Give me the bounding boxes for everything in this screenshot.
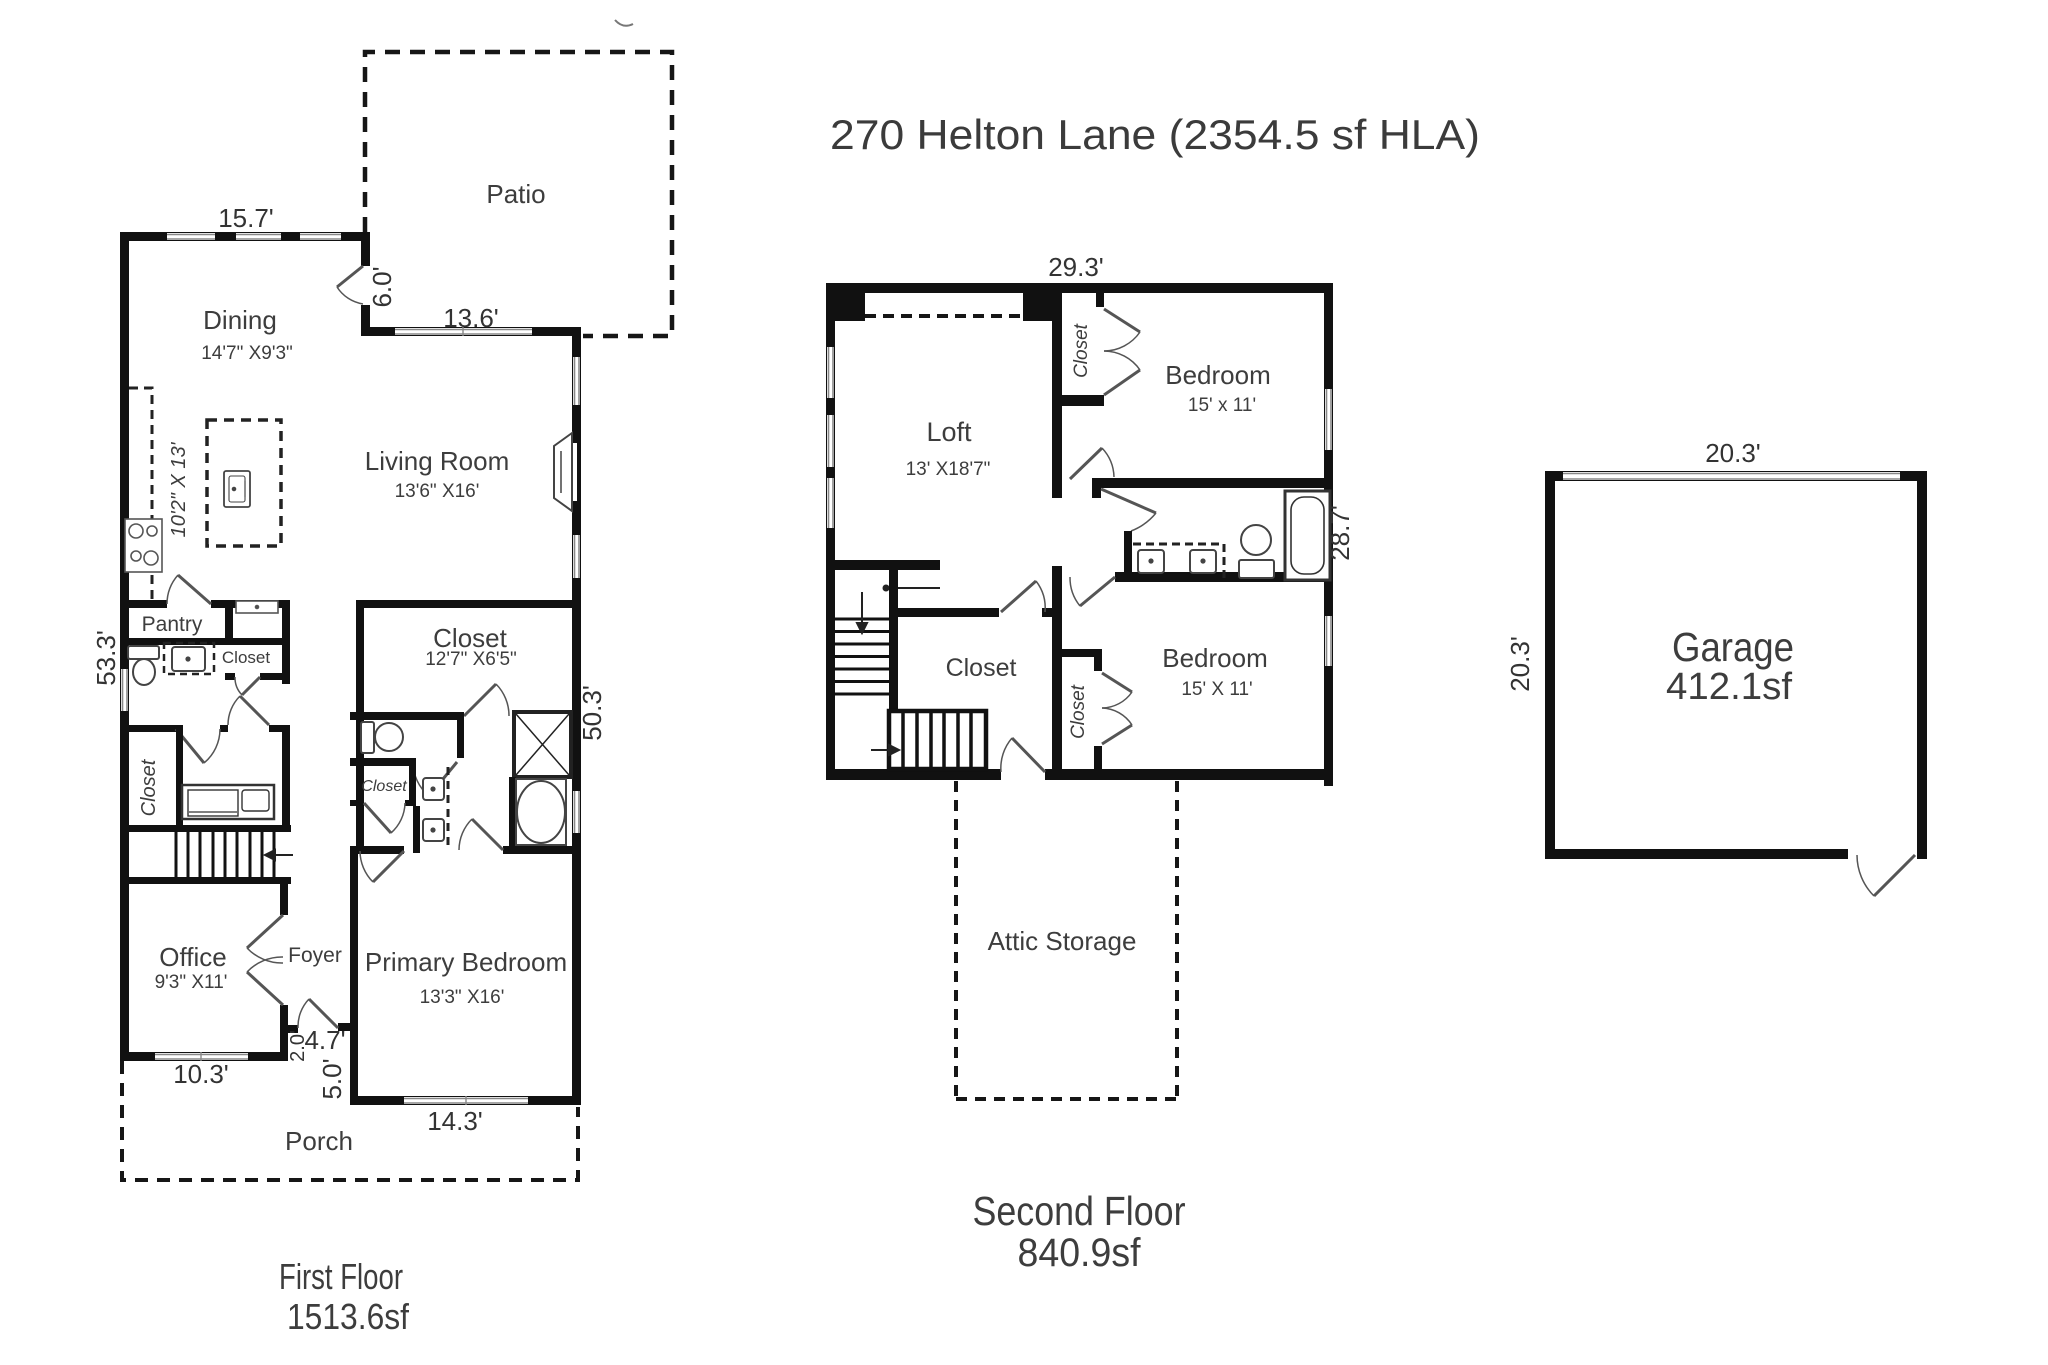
svg-text:13' X18'7": 13' X18'7" bbox=[906, 459, 991, 480]
svg-text:Loft: Loft bbox=[926, 417, 972, 447]
svg-text:Bedroom: Bedroom bbox=[1165, 360, 1271, 390]
svg-text:Pantry: Pantry bbox=[142, 613, 203, 636]
svg-text:53.3': 53.3' bbox=[91, 630, 121, 686]
svg-text:20.3': 20.3' bbox=[1505, 636, 1535, 692]
svg-text:20.3': 20.3' bbox=[1705, 438, 1761, 468]
svg-text:Patio: Patio bbox=[486, 179, 545, 209]
svg-text:Attic Storage: Attic Storage bbox=[988, 926, 1137, 956]
svg-text:Dining: Dining bbox=[203, 305, 277, 335]
svg-text:Office: Office bbox=[159, 942, 226, 972]
svg-text:29.3': 29.3' bbox=[1048, 252, 1104, 282]
svg-text:14'7" X9'3": 14'7" X9'3" bbox=[201, 343, 293, 364]
svg-text:5.0': 5.0' bbox=[317, 1058, 347, 1099]
svg-text:Closet: Closet bbox=[1068, 684, 1089, 739]
svg-text:10'2" X 13': 10'2" X 13' bbox=[168, 441, 190, 537]
svg-text:Primary Bedroom: Primary Bedroom bbox=[365, 947, 567, 977]
svg-text:Closet: Closet bbox=[361, 778, 407, 795]
svg-text:Second Floor: Second Floor bbox=[973, 1188, 1186, 1234]
svg-text:50.3': 50.3' bbox=[577, 685, 607, 741]
svg-text:270 Helton Lane (2354.5 sf HLA: 270 Helton Lane (2354.5 sf HLA) bbox=[830, 111, 1480, 158]
svg-text:15' x 11': 15' x 11' bbox=[1188, 395, 1256, 416]
svg-text:Closet: Closet bbox=[222, 648, 270, 667]
svg-text:Living Room: Living Room bbox=[365, 446, 510, 476]
svg-text:First Floor: First Floor bbox=[279, 1256, 403, 1297]
svg-text:840.9sf: 840.9sf bbox=[1018, 1231, 1142, 1275]
svg-text:Bedroom: Bedroom bbox=[1162, 643, 1268, 673]
svg-text:Porch: Porch bbox=[285, 1126, 353, 1156]
svg-text:Closet: Closet bbox=[946, 654, 1017, 682]
svg-text:14.3': 14.3' bbox=[427, 1106, 483, 1136]
svg-text:1513.6sf: 1513.6sf bbox=[287, 1296, 410, 1337]
svg-text:6.0': 6.0' bbox=[367, 266, 397, 307]
svg-text:10.3': 10.3' bbox=[173, 1059, 229, 1089]
svg-text:13.6': 13.6' bbox=[443, 303, 499, 333]
svg-text:Foyer: Foyer bbox=[288, 944, 342, 967]
svg-text:13'3" X16': 13'3" X16' bbox=[420, 987, 505, 1008]
svg-text:15' X 11': 15' X 11' bbox=[1181, 679, 1252, 700]
svg-text:13'6" X16': 13'6" X16' bbox=[395, 481, 480, 502]
svg-text:Closet: Closet bbox=[1071, 323, 1092, 378]
svg-text:Closet: Closet bbox=[138, 758, 160, 816]
svg-text:15.7': 15.7' bbox=[218, 203, 274, 233]
svg-text:12'7" X6'5": 12'7" X6'5" bbox=[425, 649, 517, 670]
svg-text:Garage: Garage bbox=[1672, 624, 1794, 670]
svg-text:412.1sf: 412.1sf bbox=[1666, 666, 1792, 708]
svg-text:9'3" X11': 9'3" X11' bbox=[155, 972, 228, 993]
svg-text:4.7': 4.7' bbox=[304, 1025, 345, 1055]
